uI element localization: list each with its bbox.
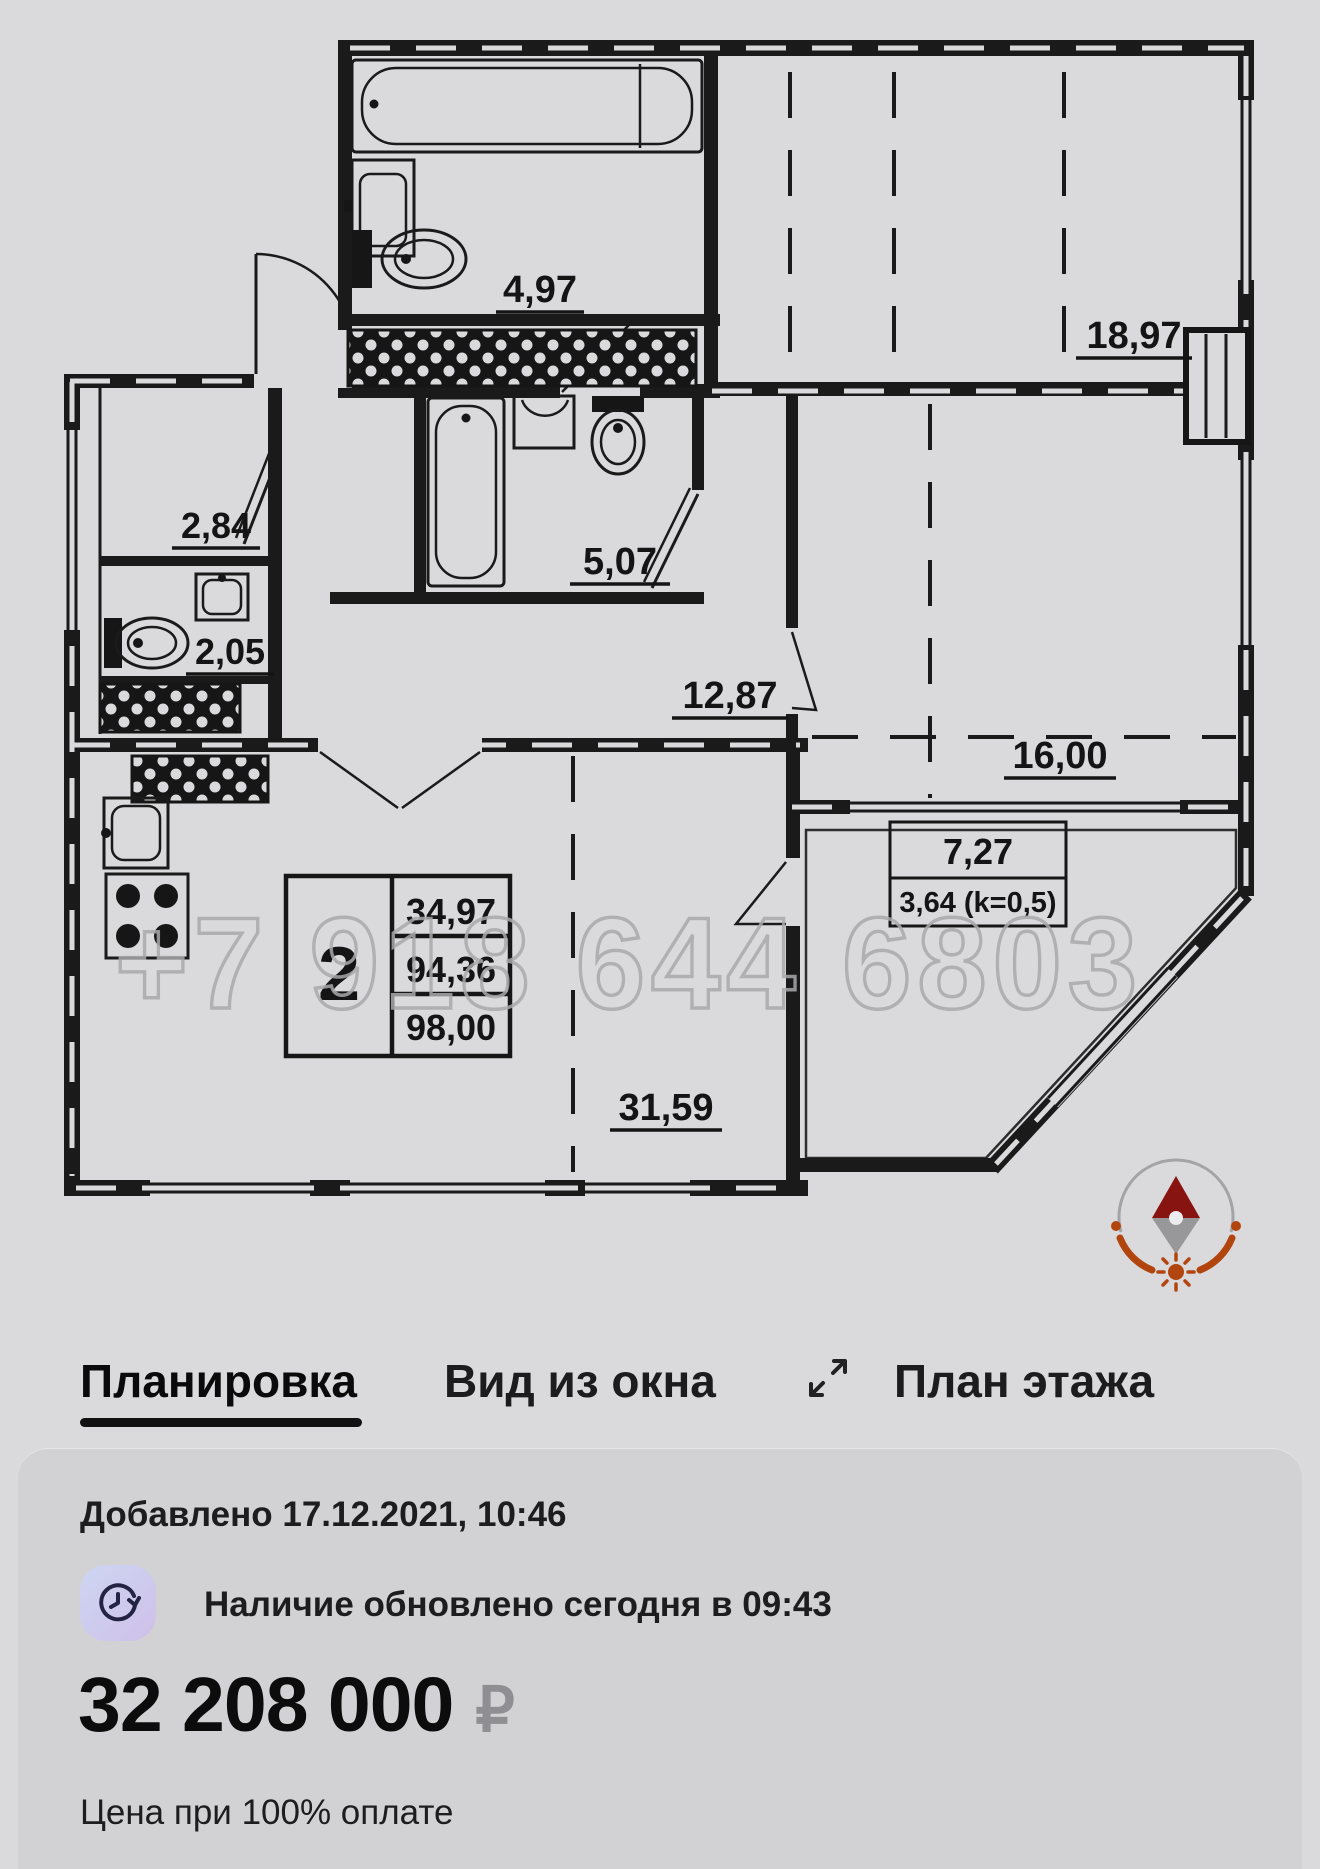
phone-watermark: +7 918 644 6803 (115, 890, 1143, 1036)
currency-symbol: ₽ (475, 1673, 514, 1746)
toilet-mid-bath (592, 396, 644, 474)
sun-icon (1158, 1254, 1194, 1290)
room-area-bath-mid: 5,07 (583, 541, 657, 583)
room-area-bath-top: 4,97 (503, 269, 577, 311)
listing-card: Добавлено 17.12.2021, 10:46 Наличие обно… (18, 1448, 1302, 1869)
bathtub-mid (428, 398, 504, 586)
added-date: Добавлено 17.12.2021, 10:46 (80, 1495, 567, 1535)
room-area-right: 16,00 (1012, 735, 1107, 777)
price-row: 32 208 000 ₽ (78, 1661, 515, 1750)
tab-plan-etazha[interactable]: План этажа (894, 1354, 1154, 1408)
expand-icon[interactable] (800, 1350, 856, 1406)
room-area-top-right: 18,97 (1086, 315, 1181, 357)
floor-plan: 2 34,97 94,36 98,00 7,27 3,64 (k=0,5) 4,… (0, 0, 1320, 1310)
room-area-hallway: 12,87 (682, 675, 777, 717)
availability-text: Наличие обновлено сегодня в 09:43 (204, 1585, 832, 1625)
gallery-tabs: Планировка Вид из окна План этажа (0, 1340, 1320, 1444)
room-area-living: 31,59 (618, 1087, 713, 1129)
room-area-terrace: 7,27 (943, 831, 1013, 872)
room-area-wc: 2,05 (195, 631, 265, 672)
toilet-top-bath (352, 230, 466, 288)
right-wall-window-assembly (1186, 330, 1248, 442)
room-area-hall-small: 2,84 (181, 505, 251, 546)
price-value: 32 208 000 (78, 1661, 453, 1750)
north-arrow-icon (1152, 1176, 1200, 1254)
toilet-wc (104, 618, 188, 668)
kitchen-sink (101, 798, 168, 868)
tab-vid-iz-okna[interactable]: Вид из окна (444, 1354, 716, 1408)
price-note: Цена при 100% оплате (80, 1793, 453, 1833)
tab-planirovka[interactable]: Планировка (80, 1354, 357, 1408)
compass-icon (1111, 1160, 1241, 1290)
sink-mid-bath (514, 396, 574, 448)
bathtub-top (352, 60, 702, 152)
clock-refresh-icon (95, 1580, 141, 1626)
availability-badge (80, 1565, 156, 1641)
active-tab-underline (80, 1418, 362, 1427)
sink-wc (196, 574, 248, 620)
